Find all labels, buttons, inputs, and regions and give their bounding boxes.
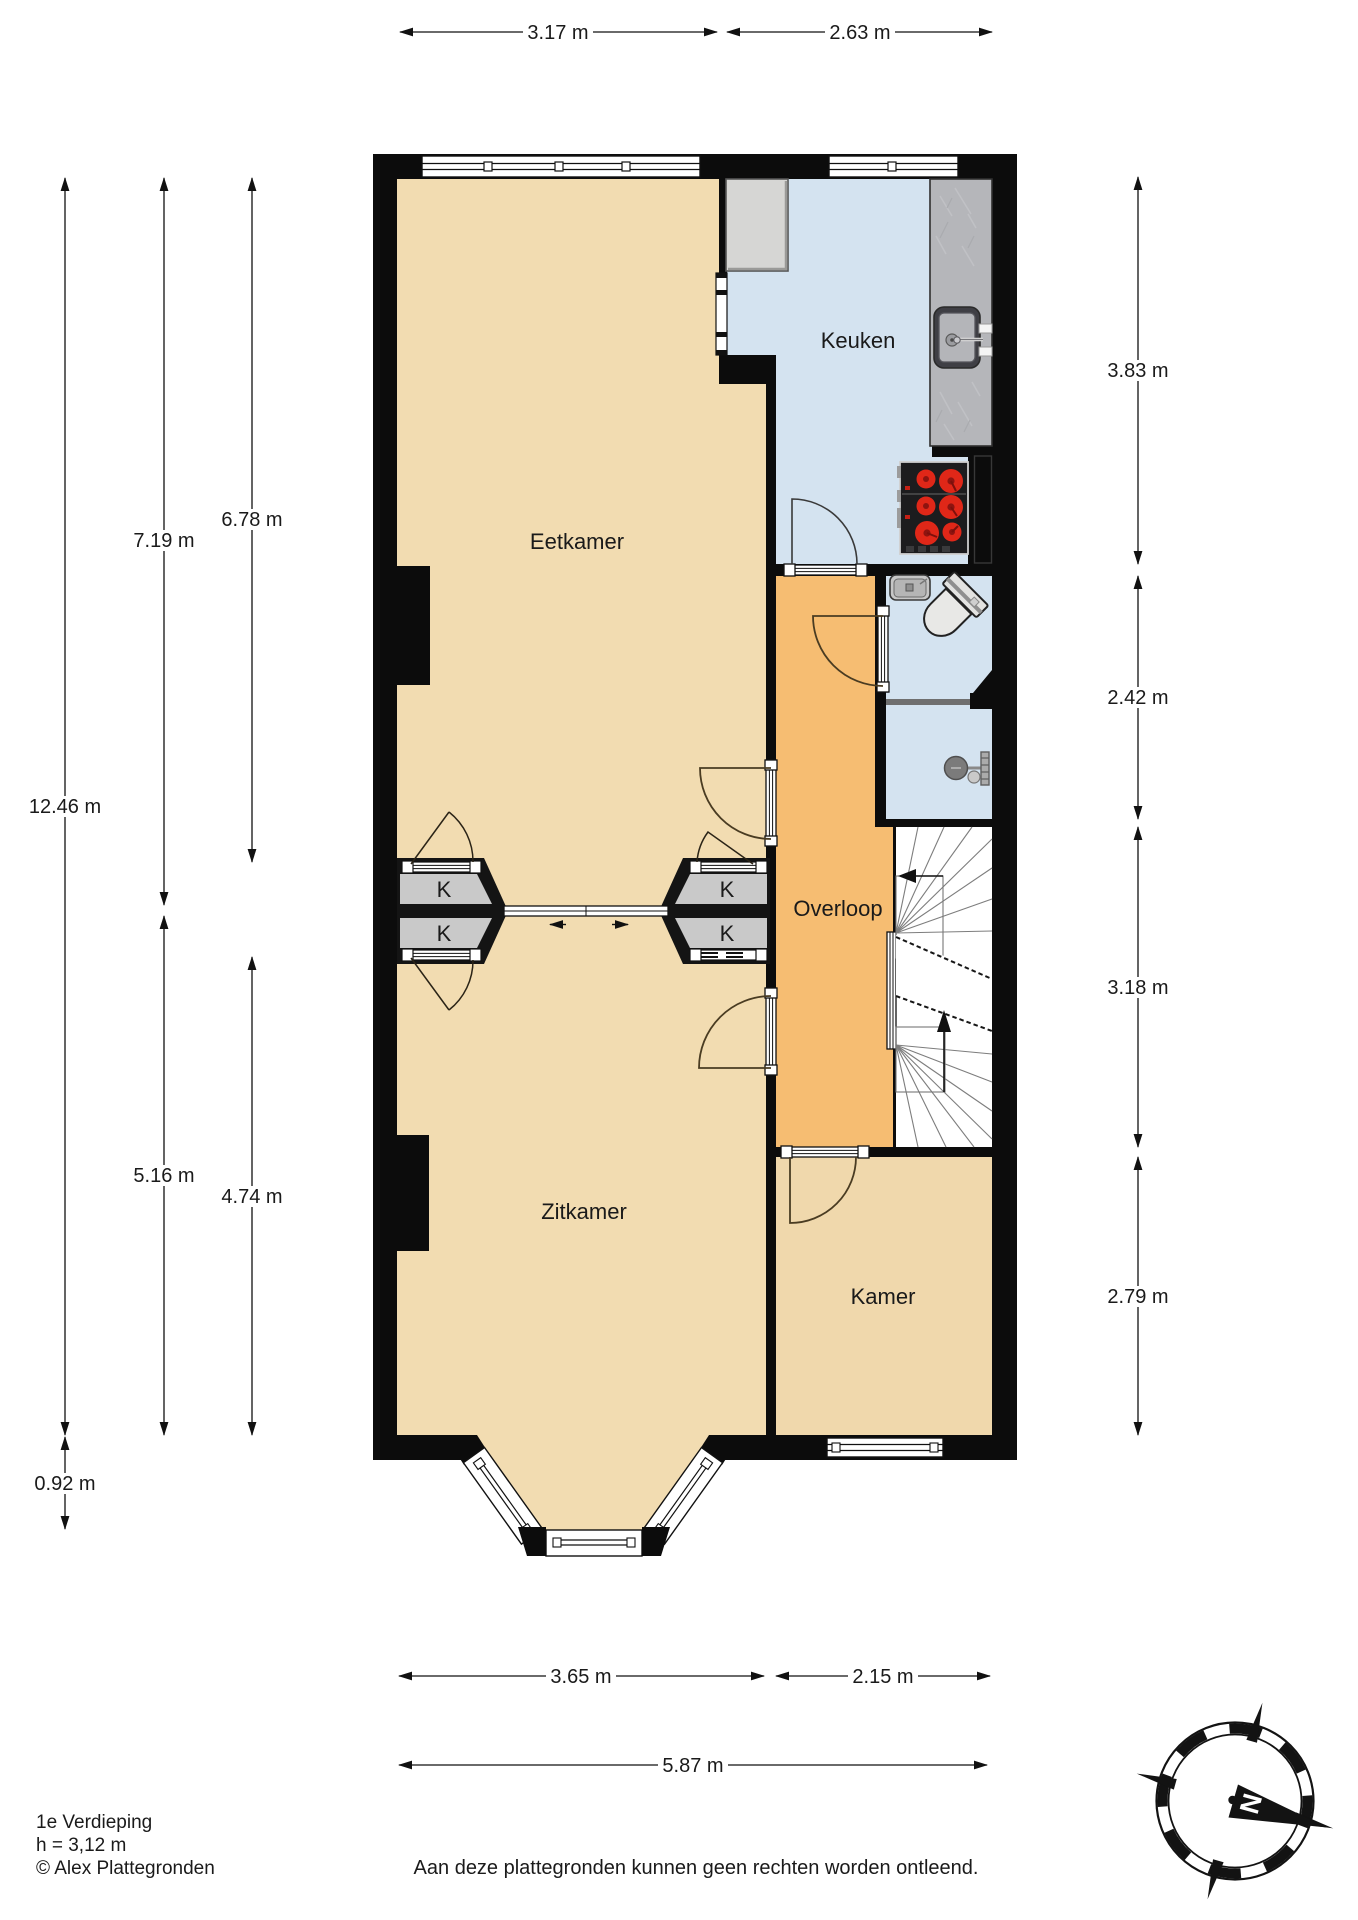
svg-text:2.79 m: 2.79 m <box>1107 1286 1168 1308</box>
svg-text:6.78 m: 6.78 m <box>221 509 282 531</box>
svg-text:3.83 m: 3.83 m <box>1107 360 1168 382</box>
svg-text:0.92 m: 0.92 m <box>34 1473 95 1495</box>
svg-text:7.19 m: 7.19 m <box>133 530 194 552</box>
svg-text:3.17 m: 3.17 m <box>527 22 588 44</box>
svg-text:K: K <box>437 921 452 946</box>
svg-text:h = 3,12 m: h = 3,12 m <box>36 1835 126 1856</box>
svg-text:K: K <box>720 921 735 946</box>
svg-text:Zitkamer: Zitkamer <box>541 1199 627 1224</box>
svg-text:© Alex Plattegronden: © Alex Plattegronden <box>36 1858 215 1879</box>
svg-text:2.63 m: 2.63 m <box>829 22 890 44</box>
svg-text:Eetkamer: Eetkamer <box>530 529 624 554</box>
svg-text:3.65 m: 3.65 m <box>550 1666 611 1688</box>
svg-text:2.15 m: 2.15 m <box>852 1666 913 1688</box>
svg-text:Keuken: Keuken <box>821 328 896 353</box>
svg-text:3.18 m: 3.18 m <box>1107 977 1168 999</box>
svg-text:5.87 m: 5.87 m <box>662 1755 723 1777</box>
svg-text:Overloop: Overloop <box>793 896 882 921</box>
svg-text:K: K <box>720 877 735 902</box>
svg-text:4.74 m: 4.74 m <box>221 1186 282 1208</box>
svg-text:K: K <box>437 877 452 902</box>
svg-text:Kamer: Kamer <box>851 1284 916 1309</box>
svg-text:1e Verdieping: 1e Verdieping <box>36 1812 152 1833</box>
svg-text:Aan deze plattegronden kunnen: Aan deze plattegronden kunnen geen recht… <box>414 1857 979 1879</box>
svg-text:12.46 m: 12.46 m <box>29 796 101 818</box>
svg-text:2.42 m: 2.42 m <box>1107 687 1168 709</box>
svg-text:5.16 m: 5.16 m <box>133 1165 194 1187</box>
